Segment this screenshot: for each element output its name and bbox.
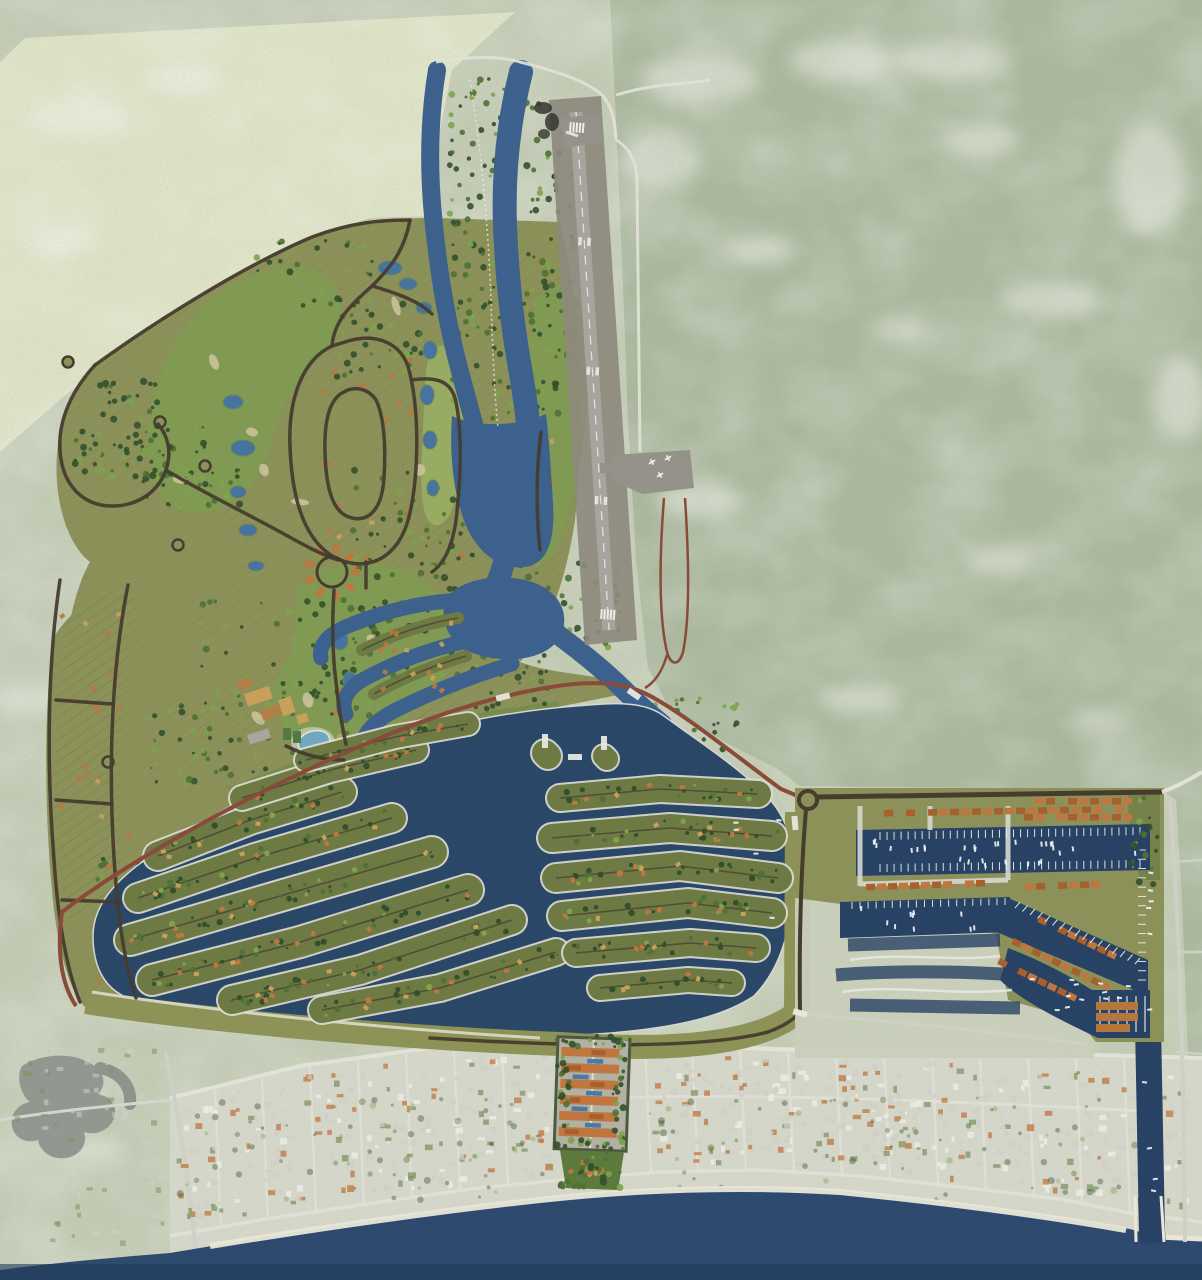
masterplan-map [0, 0, 1202, 1280]
masterplan-screenshot [0, 0, 1202, 1280]
final-grain [0, 0, 1202, 1280]
